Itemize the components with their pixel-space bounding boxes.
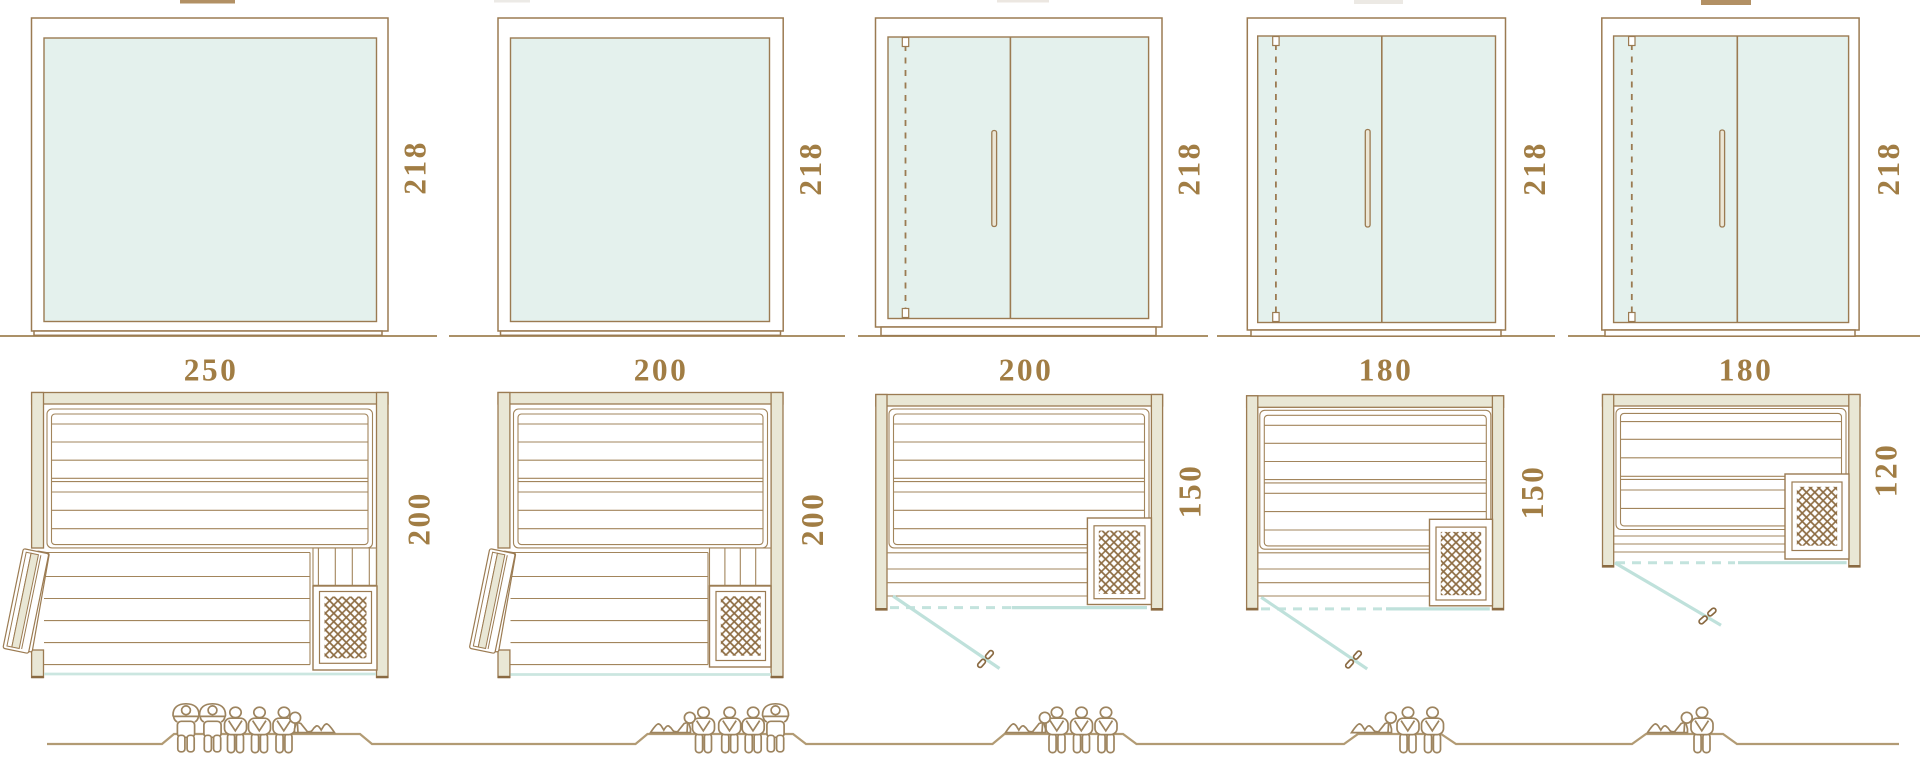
svg-text:200: 200 xyxy=(634,353,688,388)
svg-text:180: 180 xyxy=(1719,353,1773,388)
svg-text:120: 120 xyxy=(1869,443,1904,497)
svg-text:218: 218 xyxy=(1172,141,1207,195)
svg-text:200: 200 xyxy=(795,492,830,546)
svg-text:200: 200 xyxy=(999,353,1053,388)
svg-text:200: 200 xyxy=(402,491,437,545)
svg-text:180: 180 xyxy=(1359,353,1413,388)
svg-text:218: 218 xyxy=(398,140,433,194)
svg-text:218: 218 xyxy=(1517,141,1552,195)
svg-text:218: 218 xyxy=(1871,141,1906,195)
svg-text:150: 150 xyxy=(1515,465,1550,519)
svg-text:218: 218 xyxy=(793,141,828,195)
svg-text:250: 250 xyxy=(184,353,238,388)
svg-text:150: 150 xyxy=(1173,464,1208,518)
